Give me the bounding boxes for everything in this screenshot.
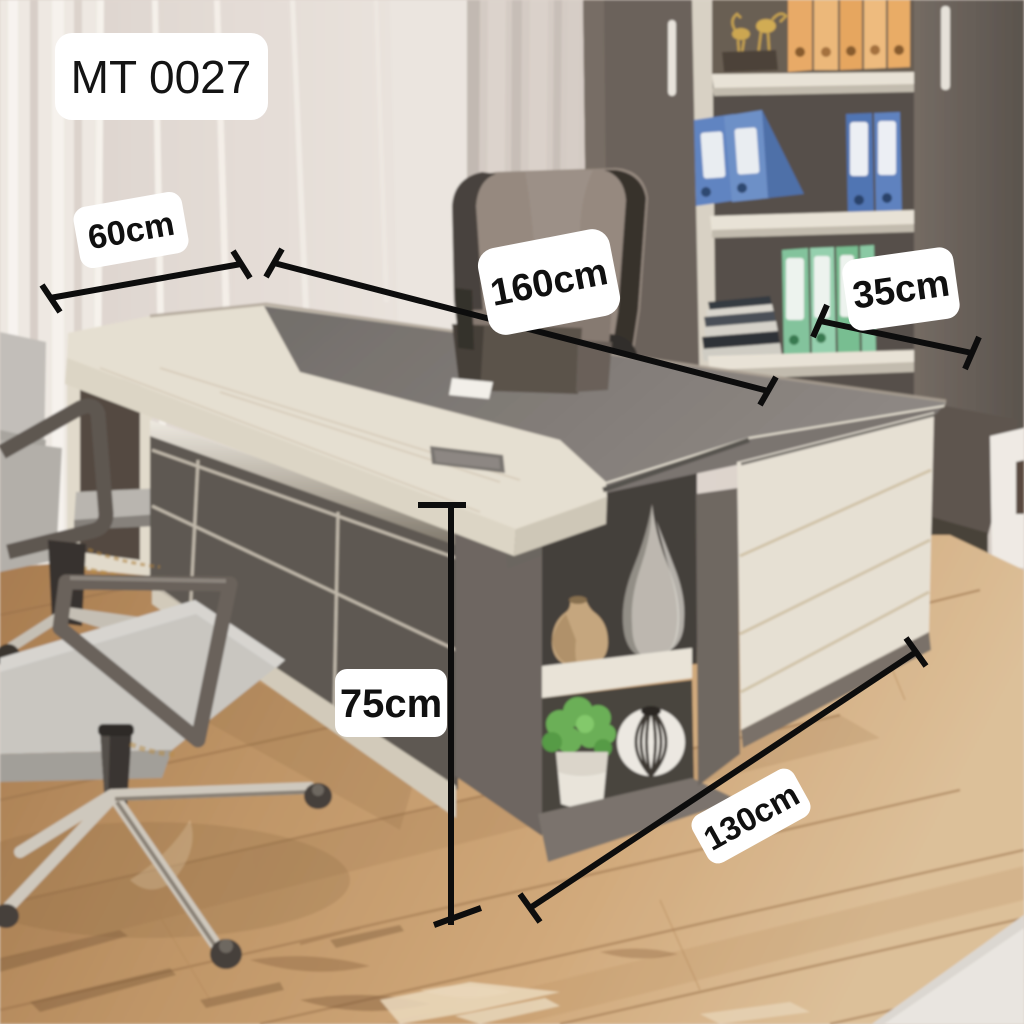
svg-text:MT 0027: MT 0027 [71, 51, 252, 103]
svg-text:75cm: 75cm [340, 682, 442, 726]
